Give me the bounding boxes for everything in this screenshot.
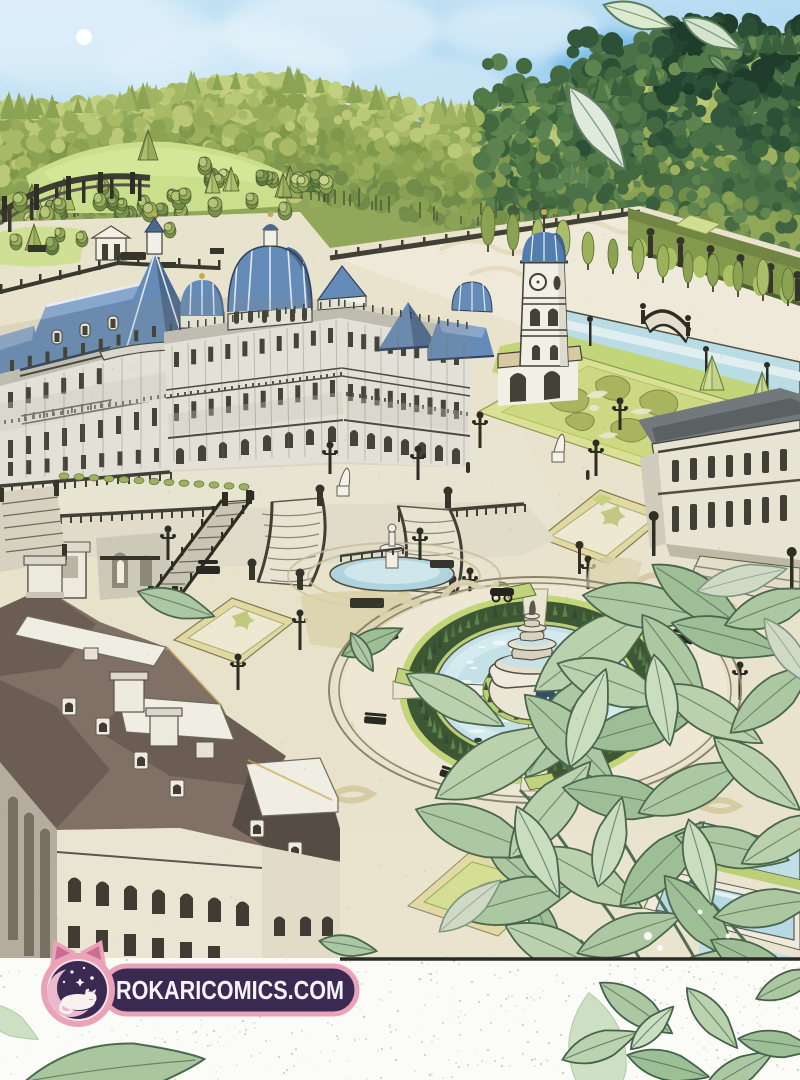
- svg-text:ROKARICOMICS.COM: ROKARICOMICS.COM: [116, 975, 344, 1005]
